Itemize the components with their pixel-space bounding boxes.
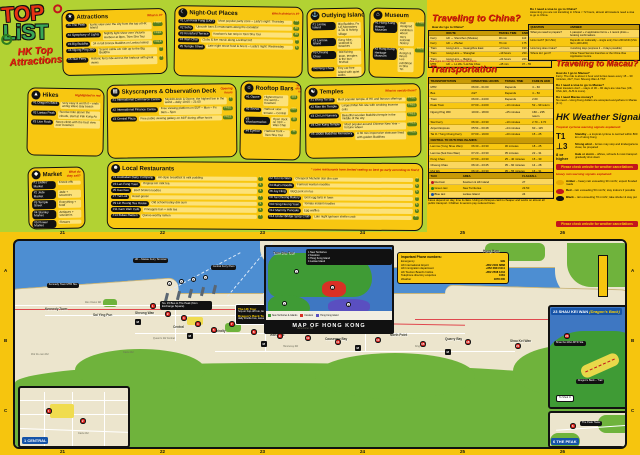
item-desc: Late night typhoon shelter crab	[313, 215, 412, 220]
map-marker: 11	[335, 339, 341, 345]
map-note-ribbon	[598, 255, 608, 297]
table-cell: Depends on nationality – single entry fr…	[569, 38, 639, 46]
road	[215, 351, 515, 352]
item-price-tag: $	[258, 196, 262, 200]
category-item: #2 Symphony of LightsNightly light show …	[66, 31, 163, 41]
inset-peak-label: 6 THE PEAK	[551, 438, 579, 445]
central-marker: 2	[80, 418, 86, 424]
category-subtitle: * some restaurants have limited seating …	[311, 168, 419, 172]
item-name: #2 Tim Ho Wan	[268, 177, 293, 182]
category-items: #1 OzoneHighest bar in the world – Kowlo…	[244, 95, 298, 138]
item-name: #2 Sevva	[244, 107, 261, 112]
table-row: Ngong Ping 36010:00 – 18:00~25 minutes16…	[429, 109, 553, 119]
signal-name: Standby	[575, 132, 586, 136]
rain-signals-subtitle: Heavy rain warning signals explained:	[556, 172, 638, 176]
peak-bus-callout: No. 15 Bus to The Peak (from Exchange Sq…	[160, 301, 212, 310]
table-cell: 1 passport + 2 application forms + 1 rec…	[569, 30, 639, 38]
transportation-note: Fares depend on day, time & class. Using…	[428, 199, 552, 206]
category-subtitle: Which district is it?	[272, 12, 300, 16]
weather-section-title: HK Weather Signals	[556, 112, 640, 123]
item-name: #1 Ozone	[244, 95, 261, 100]
category-item: #2 Hong Kong Heritage MuseumArt, design …	[372, 47, 420, 72]
category-item: #1 Lantau IslandBig Buddha, Po Lin Monas…	[311, 22, 361, 37]
category-item: #1 OzoneHighest bar in the world – Kowlo…	[244, 95, 297, 107]
item-price-tag: FREE	[407, 97, 417, 101]
rain-signal-desc: Red – rain exceeding 50 mm/hr; stay indo…	[566, 189, 635, 192]
district-label: North Point	[390, 333, 407, 337]
pier-number: 7	[203, 275, 208, 280]
grid-number: 22	[160, 449, 165, 454]
table-cell: Tai O / Tung Chung Ferry	[429, 132, 470, 138]
item-price-tag: $$	[293, 20, 299, 24]
item-name: #1 Australian Dairy Company	[111, 176, 155, 181]
item-name: #3 Temple Street	[32, 200, 56, 209]
item-price-tag: $$	[293, 33, 299, 37]
category-header: ⌂Museum	[373, 11, 421, 21]
item-desc: Big Buddha, Po Lin Monastery & Tai O fis…	[337, 22, 361, 37]
category-item: #12 Mammy PancakeEgg waffles$	[267, 208, 419, 214]
item-name: #12 Mammy Pancake	[267, 208, 301, 213]
weather-cancellation-banner: Please check website for weather cancell…	[556, 221, 638, 227]
ferry-route	[169, 252, 240, 290]
table-row: What you need to prepare?1 passport + 2 …	[529, 30, 639, 38]
macau-answer: Ferry. The ride is about 1 hour and ferr…	[556, 75, 638, 81]
item-name: #11 Kam Wah Café	[111, 207, 141, 212]
table-cell: ~25 minutes	[503, 109, 530, 119]
grid-number: 21	[60, 449, 65, 454]
item-name: #14 Under Bridge Spicy Crab	[267, 215, 311, 220]
item-name: #5 Star Ferry	[66, 57, 88, 62]
market-icon: ◆	[32, 170, 41, 179]
category-box-sky: ▦Skyscrapers & Observation DeckOpening h…	[107, 83, 238, 159]
item-name: #3 Cheung Chau	[311, 51, 336, 60]
category-item: #2 Man Mo TempleLargest Man Mo site with…	[309, 103, 417, 112]
macau-answer: No need – Hong Kong dollars are accepted…	[556, 99, 638, 105]
phone-rows: Emergency999HK International Airport+852…	[401, 260, 505, 281]
rain-signal-blob	[556, 189, 564, 194]
inset-central-label: 1 CENTRAL	[22, 437, 48, 444]
grid-number: 21	[60, 230, 65, 235]
district-label: Tsim Sha Tsui	[273, 251, 294, 255]
item-desc: BBQ pork on rice	[289, 189, 413, 194]
pier-number: 5	[179, 279, 184, 284]
item-price-tag: $	[415, 203, 419, 207]
category-title: Market	[43, 171, 62, 177]
signal-desc: Strong wind – ferries may stop and kinde…	[575, 143, 638, 150]
rain-signal-name: Black	[566, 195, 574, 199]
macau-answer: Most travelers don't – stays of 30 – 90 …	[556, 87, 638, 93]
item-name: #4 Stanley Market	[32, 210, 56, 219]
street-label: Hennessy Rd	[283, 345, 298, 348]
transportation-table: TRANSPORTATIONOPERATING HOURSTRAVEL TIME…	[428, 77, 554, 176]
map-marker: 3	[181, 315, 187, 321]
item-price-tag: FREE on Wed	[415, 48, 425, 53]
category-item: #8 Tai Cheong BakeryBest egg tarts in to…	[267, 196, 419, 202]
grid-number: 24	[360, 449, 365, 454]
cyclone-signal: ⊥3Strong wind – ferries may stop and kin…	[556, 143, 638, 151]
category-item: #13 Butao RamenQueue-worthy ramen$	[111, 213, 263, 219]
pier-number: 6	[191, 277, 196, 282]
peak-green	[598, 415, 627, 433]
item-desc: Beautiful wooden Buddhist temple in the …	[340, 113, 405, 122]
taxi-color-dot	[431, 193, 434, 196]
item-desc: Flowers	[58, 220, 81, 225]
item-name: #1 Hong Kong History Museum	[373, 21, 397, 33]
grid-number: 23	[260, 449, 265, 454]
category-title: Hikes	[42, 92, 58, 98]
macau-ferry-terminal-label: HK – Macau Ferry Terminal	[133, 258, 168, 263]
category-subtitle: What is it?	[147, 14, 162, 17]
item-price-tag: $	[415, 190, 419, 194]
item-desc: Antiques + souvenirs	[58, 210, 81, 218]
central-street	[20, 428, 130, 433]
item-desc: Harbour front – Tsim Sha Tsui	[263, 130, 290, 138]
inset-info-box: 1 New Territories2 Kowloon3 Hong Kong Is…	[306, 249, 392, 265]
item-name: #4 Ngong Ping 360	[66, 48, 96, 53]
category-title: Local Restaurants	[122, 166, 174, 172]
item-price-tag: $	[258, 189, 262, 193]
item-price-tag: $$	[413, 216, 419, 220]
map-marker: 8	[251, 329, 257, 335]
item-desc: Tiny car-free island with quiet walks	[336, 66, 361, 78]
street-label: Queen's Rd Central	[153, 337, 175, 340]
item-name: #2 Soho	[178, 25, 193, 30]
item-name: #7 Yat Lok	[111, 195, 129, 200]
category-item: #2 SevvaHarbour view terrace – Central$$…	[244, 107, 297, 116]
attractions-icon: ★	[65, 13, 74, 22]
hong-kong-overview-inset: 1 New Territories2 Kowloon3 Hong Kong Is…	[264, 245, 394, 334]
item-price-tag: FREE	[407, 122, 417, 126]
temples-icon: ☯	[309, 88, 318, 97]
hikes-icon: ▲	[31, 90, 40, 99]
rain-signal-name: Amber	[566, 179, 575, 183]
map-marker: M	[445, 349, 451, 355]
phone-numbers-box: Important Phone numbers: Emergency999HK …	[397, 252, 509, 284]
district-label: Kennedy Town	[45, 307, 67, 311]
db-trail-chip: Dragon's Back – Trail	[576, 379, 604, 384]
category-item: #1 Australian Dairy CompanyHK-style brea…	[111, 176, 263, 182]
street-label: Pok Fu Lam Rd	[31, 353, 48, 356]
item-price-tag: FREE	[407, 103, 417, 107]
item-desc: Original HK milk tea	[141, 182, 256, 187]
street-label: Caine Rd	[123, 351, 133, 354]
item-desc: Roast goose	[131, 195, 257, 200]
category-item: #5 Flower MarketFlowers	[32, 220, 81, 229]
map-marker: 2	[165, 311, 171, 317]
grid-number: 25	[460, 230, 465, 235]
category-header: ☼Rooftop BarsWhich district is it?	[244, 84, 297, 94]
table-cell: 15 – 25	[531, 132, 553, 138]
item-name: #8 Tai Cheong Bakery	[267, 196, 301, 201]
table-cell: 10:00 – 18:00	[470, 109, 503, 119]
region-number: 3	[346, 302, 351, 307]
category-header: ▦Skyscrapers & Observation DeckOpening h…	[111, 86, 233, 96]
item-desc: Jade + souvenirs	[58, 190, 81, 198]
db-station-chip: Shau Kei Wan MTR Sta.	[554, 341, 586, 346]
caine-rd-label: Caine Rd	[78, 432, 88, 435]
grid-letter: C	[4, 408, 7, 413]
category-item: #10 Sing Heung YuenTomato instant noodle…	[267, 202, 419, 208]
central-street	[104, 392, 105, 446]
table-row: How much? (for USA)Depends on nationalit…	[529, 38, 639, 46]
signal-glyph: 8 or higher	[556, 153, 573, 161]
map-marker: 15	[420, 341, 426, 347]
item-price-tag: FREE	[407, 131, 417, 135]
category-subtitle: Which district is it?	[295, 84, 301, 94]
map-marker: 1	[150, 303, 156, 309]
category-item: #3 Central PlazaFree public viewing gall…	[111, 115, 233, 121]
item-price-tag: $	[258, 177, 262, 181]
taxi-color-dot	[431, 181, 434, 184]
peak-hill	[75, 349, 205, 391]
category-item: #4 Peng ChauTiny car-free island with qu…	[311, 66, 361, 78]
item-name: #2 Jade Market	[32, 190, 56, 199]
item-price-tag: $$	[291, 130, 297, 134]
taxi-color-dot	[431, 187, 434, 190]
category-items: #1 Ladies' MarketKnock-offs#2 Jade Marke…	[32, 180, 82, 229]
item-name: #2 International Finance Centre	[111, 107, 158, 112]
item-desc: Free viewing platform on 55/F – Mon – Fr…	[159, 106, 221, 114]
item-desc: Sunrise hike above the clouds, start at …	[58, 111, 100, 119]
taxi-type: Blue taxi	[429, 192, 461, 198]
item-desc: Most popular party zone – Lady's night: …	[217, 19, 292, 24]
dragons-back-inset: 23 SHAU KEI WAN (Dragon's Back) Shau Kei…	[548, 305, 627, 409]
district-label: Sai Ying Pun	[93, 313, 112, 317]
item-price-tag: FREE	[223, 115, 233, 119]
item-desc: Clubs & live music along Lockhart Rd	[201, 38, 293, 44]
grid-number: 22	[160, 230, 165, 235]
rain-signal: Red – rain exceeding 50 mm/hr; stay indo…	[556, 189, 638, 194]
road	[15, 305, 265, 306]
table-cell: What you need to prepare?	[529, 30, 569, 38]
macau-qa-list: How do I go to Macau?Ferry. The ride is …	[556, 69, 638, 105]
category-title: Skyscrapers & Observation Deck	[122, 88, 216, 95]
category-item: #4 Wan ChaiClubs & live music along Lock…	[178, 38, 299, 44]
item-desc: Tomato instant noodles	[303, 202, 414, 207]
item-price-tag: $$	[291, 117, 297, 121]
grid-number: 24	[360, 230, 365, 235]
legend-swatch	[300, 314, 303, 317]
china-visa-note: Do I need a visa to go to China? Assumin…	[530, 7, 636, 17]
grid-letter: A	[4, 268, 7, 273]
category-header: ☾Night-Out PlacesWhich district is it?	[178, 8, 299, 19]
inset-title: MAP OF HONG KONG	[266, 320, 392, 333]
item-name: #2 Man Mo Temple	[309, 104, 339, 109]
map-marker: 7	[229, 321, 235, 327]
map-marker: M	[187, 333, 193, 339]
district-label: Sheung Wan	[135, 311, 154, 315]
category-item: #5 Temple StreetLate night street food &…	[178, 44, 299, 50]
item-name: #3 Big Buddha	[66, 42, 90, 47]
category-items: #1 International Commerce CentreSky100 d…	[111, 97, 233, 122]
central-detail-inset: Caine Rd 1 2 1 CENTRAL	[18, 386, 130, 448]
phone-row: Weather1878 200	[401, 278, 505, 282]
item-name: #1 The Peak	[66, 23, 87, 28]
category-subtitle: What do they sell?	[64, 171, 81, 178]
item-name: #2 Symphony of Lights	[66, 32, 101, 37]
item-name: #1 International Commerce Centre	[111, 98, 162, 103]
category-items: #1 Lantau IslandBig Buddha, Po Lin Monas…	[311, 22, 362, 79]
grid-number: 23	[260, 230, 265, 235]
item-desc: Famous wonton noodles	[296, 183, 414, 188]
street-label: Des Voeux Rd	[85, 301, 101, 304]
map-marker: 21	[515, 343, 521, 349]
item-price-tag: $	[228, 97, 232, 101]
rain-signal-blob	[556, 196, 564, 201]
item-desc: Well designed exhibition about HK's colo…	[398, 22, 414, 47]
islands-icon: ⚓	[310, 11, 319, 20]
category-item: #11 Kam Wah CaféPineapple bun + milk tea…	[111, 207, 263, 213]
cyclone-signal: T1Standby – a tropical cyclone is centre…	[556, 133, 638, 141]
legend-swatch	[268, 314, 271, 317]
pier-number: 4	[167, 281, 172, 286]
item-price-tag: $$$	[290, 95, 297, 99]
signal-desc: Standby – a tropical cyclone is centred …	[575, 133, 638, 140]
db-shek-o-chip: To Shek O	[556, 395, 574, 402]
item-name: #2 Lantau Peak	[31, 110, 56, 115]
item-price-tag: $	[258, 202, 262, 206]
item-desc: Nightly light show over Victoria Harbour…	[102, 31, 151, 40]
category-item: #4 EyebarHarbour front – Tsim Sha Tsui$$	[244, 129, 297, 138]
category-item: #1 Wong Tai SinMost popular temple of HK…	[309, 97, 417, 103]
transportation-section-title: Transportation	[430, 64, 497, 75]
category-item: #2 Lantau PeakSunrise hike above the clo…	[31, 110, 100, 119]
cyclone-signal-list: T1Standby – a tropical cyclone is centre…	[556, 131, 638, 161]
cyclone-signals-subtitle: Tropical cyclone warning signals explain…	[556, 125, 638, 129]
item-desc: Sky100 deck & Ozone, the highest bar in …	[163, 97, 227, 105]
map-marker: 18	[465, 339, 471, 345]
china-lead-question: How do I go to China?	[432, 25, 464, 29]
item-desc: Best egg tarts in town	[303, 196, 413, 201]
item-price-tag: $	[258, 183, 262, 187]
item-desc: Cheapest Michelin star dim sum	[294, 177, 413, 182]
item-name: #1 Lantau Island	[311, 22, 336, 31]
db-marker: 23	[564, 333, 570, 339]
top-list-logo: TOP LiST HK TopAttractions	[1, 2, 69, 98]
item-name: #10 Sing Heung Yuen	[267, 202, 301, 207]
item-name: #1 Ladies' Market	[32, 181, 56, 190]
category-item: #4 Mak's NoodleFamous wonton noodles$	[268, 183, 420, 189]
rain-signal: Amber – heavy rain exceeding 30 mm/hr; e…	[556, 180, 638, 187]
category-box-hikes: ▲HikesHighlighted in red#1 Dragon's Back…	[26, 87, 104, 156]
item-desc: Late night street food & beers – Lady's …	[206, 44, 293, 50]
signal-desc: Gale or storm – offices, schools & most …	[575, 153, 638, 160]
map-marker: 5	[211, 327, 217, 333]
china-section-title: Traveling to China?	[432, 13, 521, 24]
category-item: #7 Yat LokRoast goose$	[111, 195, 263, 201]
table-row: Tai O / Tung Chung Ferry07:00 – 19:00~20…	[429, 132, 553, 138]
item-desc: Largest Man Mo site with smoking incense…	[340, 103, 405, 112]
rooftop-icon: ☼	[244, 84, 253, 93]
cyclone-signal: 8 or higherGale or storm – offices, scho…	[556, 153, 638, 161]
grid-number: 26	[560, 230, 565, 235]
category-item: #2 Jade MarketJade + souvenirs	[32, 190, 81, 199]
category-box-market: ◆MarketWhat do they sell?#1 Ladies' Mark…	[27, 167, 85, 230]
category-box-islands: ⚓Outlying IslandsWhat to see there?#1 La…	[306, 7, 365, 78]
category-item: #2 International Finance CentreFree view…	[111, 106, 233, 115]
item-name: #6 Joy Hing	[268, 189, 288, 194]
item-name: #4 Che Kung Temple	[309, 123, 342, 128]
category-item: #14 Under Bridge Spicy CrabLate night ty…	[267, 215, 419, 221]
category-item: #5 10000 Buddhas MonasteryA 30 min impre…	[309, 131, 417, 140]
category-items: #1 Lan Kwai Fong (LKF)Most popular party…	[178, 19, 299, 51]
item-name: #13 Butao Ramen	[111, 213, 140, 218]
category-title: Rooftop Bars	[255, 85, 293, 92]
category-box-nightout: ☾Night-Out PlacesWhich district is it?#1…	[174, 5, 304, 78]
weather-cancellation-banner: Please check website for weather cancell…	[556, 164, 638, 170]
category-item: #4 Stanley MarketAntiques + souvenirs	[32, 210, 81, 219]
item-price-tag: FREE on Wed	[416, 22, 426, 27]
map-marker: M	[261, 341, 267, 347]
kennedy-town-mtr-label: Kennedy Town MTR Sta.	[47, 283, 79, 288]
item-name: #4 Eyebar	[244, 129, 262, 134]
item-name: #3 Wooloomooloo	[244, 117, 270, 126]
item-desc: A 30 min impressive staircase lined with…	[356, 131, 406, 139]
item-name: #3 Lan Fong Yuen	[111, 182, 140, 187]
table-cell: ~45 min	[497, 62, 520, 67]
category-header: ☯TemplesWhat to see/do there?	[309, 86, 417, 97]
category-item: #1 Ladies' MarketKnock-offs	[32, 180, 81, 189]
item-name: #2 Hong Kong Heritage Museum	[373, 47, 397, 59]
phone-value: 1878 200	[494, 278, 505, 282]
grid-letter: B	[631, 338, 634, 343]
grid-letter: C	[631, 408, 634, 413]
main-city-map: 4567 Kennedy Town MTR Sta. HK – Macau Fe…	[13, 239, 627, 449]
food-icon: ☻	[111, 164, 120, 173]
item-desc: Most popular temple of HK and famous off…	[336, 97, 405, 102]
category-subtitle: Opening hours	[218, 88, 233, 94]
district-label: Hung Hom	[483, 249, 499, 253]
central-street	[20, 414, 130, 415]
category-box-temples: ☯TemplesWhat to see/do there?#1 Wong Tai…	[304, 83, 421, 159]
item-name: #2 Lamma Island	[311, 38, 336, 47]
map-marker: 13	[375, 337, 381, 343]
category-title: Museum	[384, 12, 408, 18]
category-item: #2 Lamma IslandEasy hike, seafood & beac…	[311, 38, 361, 50]
item-name: #4 Wan Chai	[178, 38, 199, 43]
legend-swatch	[316, 314, 319, 317]
district-label: Quarry Bay	[445, 337, 462, 341]
visa-answer: Assuming you are not transiting in China…	[530, 11, 636, 17]
item-name: #4 Mak's Noodle	[268, 183, 295, 188]
category-item: #1 The PeakIconic view over the city fro…	[66, 22, 163, 32]
category-items: #1 The PeakIconic view over the city fro…	[66, 22, 164, 66]
grid-number: 26	[560, 449, 565, 454]
taxi-area: Lantau Island	[461, 192, 521, 198]
table-cell: 07:00 – 19:00	[470, 132, 503, 138]
rain-signal-desc: Amber – heavy rain exceeding 30 mm/hr; e…	[566, 180, 638, 187]
item-name: #3 Lion Rock	[31, 120, 53, 125]
item-desc: Pineapple bun + milk tea	[143, 207, 257, 212]
item-name: #3 Chi Lin Nunnery	[309, 114, 339, 119]
category-item: #1 International Commerce CentreSky100 d…	[111, 97, 233, 106]
category-item: #3 Cheung ChauOld fishing town, temples …	[311, 50, 361, 65]
central-lkf-zone	[50, 404, 74, 418]
item-desc: HK-style breakfast & milk pudding	[156, 176, 257, 181]
item-name: #1 Dragon's Back	[31, 101, 59, 106]
item-desc: Egg waffles	[302, 208, 413, 213]
category-item: #9 Lin Heung Tea HouseOld school trolley…	[111, 201, 263, 207]
item-desc: Beef brisket noodles	[132, 188, 256, 193]
inset-legend: New Territories & IslandsKowloonHong Kon…	[266, 311, 392, 320]
item-desc: Historic ferry ride across the harbour w…	[89, 56, 157, 65]
item-price-tag: $	[295, 39, 299, 43]
china-visa-qa-table: QUESTIONANSWERWhat you need to prepare?1…	[528, 24, 640, 61]
category-item: #5 Star FerryHistoric ferry ride across …	[66, 56, 163, 66]
rain-signal: Black – rain exceeding 70 mm/hr; take sh…	[556, 196, 638, 201]
item-desc: Old fishing town, temples & the bun fest…	[337, 50, 361, 65]
table-cell: Ngong Ping 360	[429, 109, 470, 119]
